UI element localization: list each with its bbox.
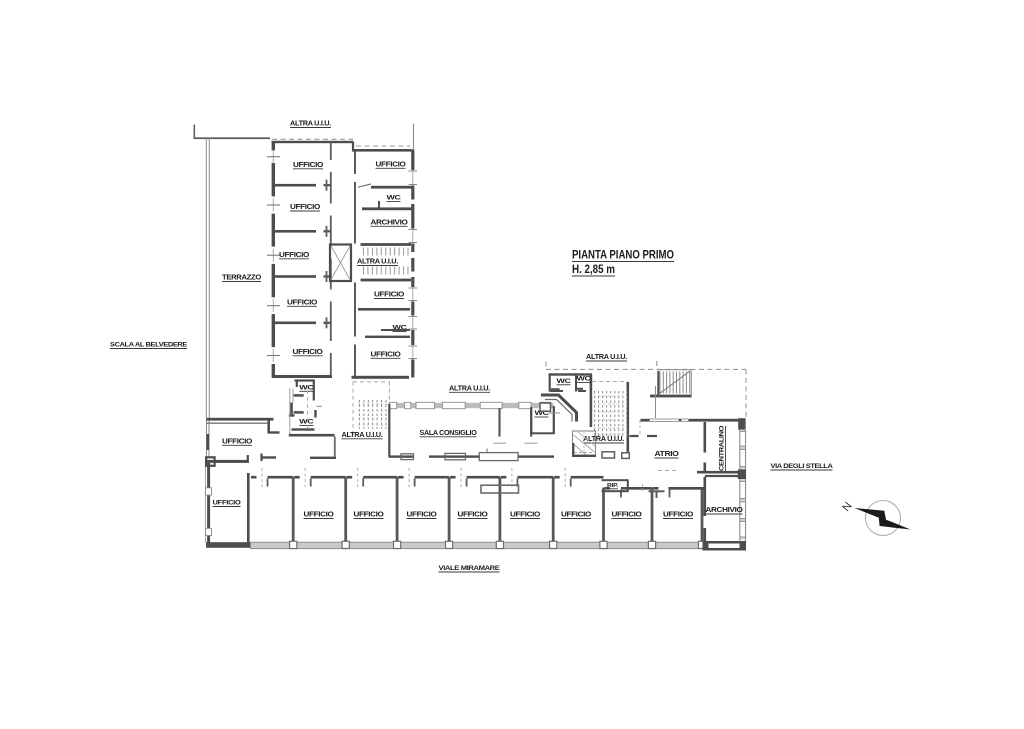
svg-text:WC: WC [557,378,572,385]
svg-text:TERRAZZO: TERRAZZO [222,275,262,282]
svg-text:UFFICIO: UFFICIO [374,292,405,299]
svg-text:ALTRA U.I.U.: ALTRA U.I.U. [583,436,624,443]
svg-text:ALTRA U.I.U.: ALTRA U.I.U. [290,121,331,128]
svg-text:VIA DEGLI STELLA: VIA DEGLI STELLA [771,463,834,470]
svg-text:UFFICIO: UFFICIO [376,161,407,168]
svg-text:UFFICIO: UFFICIO [371,351,402,358]
svg-text:ALTRA U.I.U.: ALTRA U.I.U. [449,385,490,392]
svg-text:VIALE MIRAMARE: VIALE MIRAMARE [439,565,501,572]
svg-text:ALTRA U.I.U.: ALTRA U.I.U. [342,432,383,439]
svg-text:ALTRA U.I.U.: ALTRA U.I.U. [357,259,398,266]
svg-text:UFFICIO: UFFICIO [663,512,694,519]
svg-text:UFFICIO: UFFICIO [279,252,310,259]
svg-text:UFFICIO: UFFICIO [222,438,253,445]
svg-text:UFFICIO: UFFICIO [612,512,643,519]
svg-text:SALA CONSIGLIO: SALA CONSIGLIO [420,430,478,437]
svg-text:ALTRA U.I.U.: ALTRA U.I.U. [586,354,627,361]
svg-text:WC: WC [577,376,592,383]
svg-text:UFFICIO: UFFICIO [213,500,241,507]
svg-text:ARCHIVIO: ARCHIVIO [706,507,744,514]
svg-text:PIANTA PIANO PRIMO: PIANTA PIANO PRIMO [572,248,674,262]
svg-text:UFFICIO: UFFICIO [561,512,592,519]
svg-text:WC: WC [299,419,314,426]
svg-text:UFFICIO: UFFICIO [293,349,324,356]
svg-text:H. 2,85 m: H. 2,85 m [572,262,615,276]
svg-text:UFFICIO: UFFICIO [407,512,438,519]
svg-text:UFFICIO: UFFICIO [510,512,541,519]
svg-text:ATRIO: ATRIO [655,451,680,458]
svg-text:WC: WC [299,384,314,391]
svg-text:UFFICIO: UFFICIO [290,204,321,211]
svg-text:UFFICIO: UFFICIO [354,512,385,519]
svg-text:RIP.: RIP. [607,483,619,489]
svg-text:UFFICIO: UFFICIO [293,162,324,169]
svg-text:WC: WC [387,195,402,202]
svg-text:CENTRALINO: CENTRALINO [719,426,726,471]
svg-text:ARCHIVIO: ARCHIVIO [371,219,409,226]
svg-text:UFFICIO: UFFICIO [287,299,318,306]
svg-text:UFFICIO: UFFICIO [458,512,489,519]
svg-text:SCALA AL BELVEDERE: SCALA AL BELVEDERE [110,342,188,349]
svg-text:UFFICIO: UFFICIO [304,512,335,519]
